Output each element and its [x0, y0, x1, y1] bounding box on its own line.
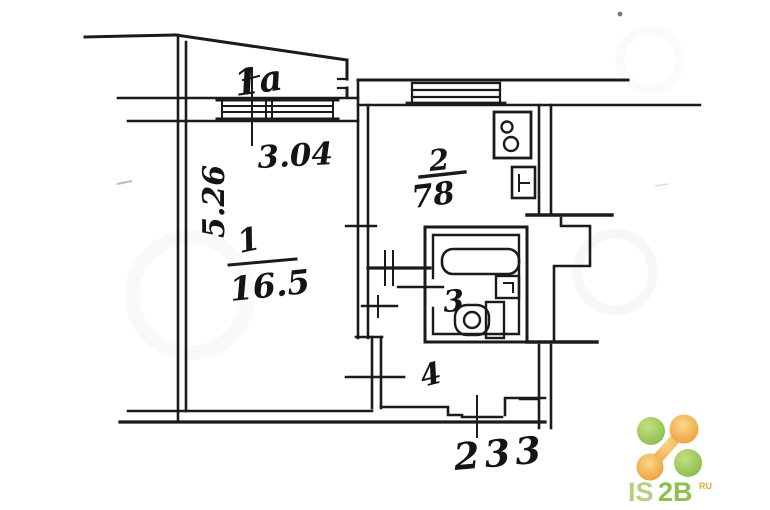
room1-area: 16.5: [228, 262, 312, 309]
is2b-logo-icon: [637, 415, 703, 481]
stove-icon: [494, 112, 531, 158]
is2b-logo-text-2b: 2B: [658, 477, 693, 507]
exterior-walls: [85, 35, 700, 422]
is2b-logo: IS 2B RU: [628, 415, 712, 508]
is2b-logo-text-is: IS: [628, 477, 654, 507]
dim-top-label: 3.04: [257, 136, 334, 176]
window-kitchen: [407, 83, 505, 103]
bathroom-number: 3: [442, 284, 465, 320]
bathtub-icon: [442, 249, 519, 274]
is2b-logo-superscript: RU: [699, 481, 712, 491]
balcony-label: 1a: [231, 57, 285, 105]
bath-sink-icon: [496, 276, 519, 298]
kitchen-area: 78: [410, 175, 457, 216]
hall-number: 4: [416, 356, 445, 395]
dim-bottom-label: 233: [451, 427, 548, 479]
floorplan-scan: 1a 3.04 5.26 1 16.5 2 78 3 4 233 IS 2B R…: [0, 0, 770, 510]
bathroom-walls: [425, 227, 527, 342]
dim-left-label: 5.26: [197, 165, 232, 238]
floorplan-drawing: 1a 3.04 5.26 1 16.5 2 78 3 4 233 IS 2B R…: [0, 0, 770, 510]
kitchen-number: 2: [426, 142, 451, 178]
window-room1: [217, 100, 338, 119]
kitchen-sink-icon: [512, 167, 535, 198]
